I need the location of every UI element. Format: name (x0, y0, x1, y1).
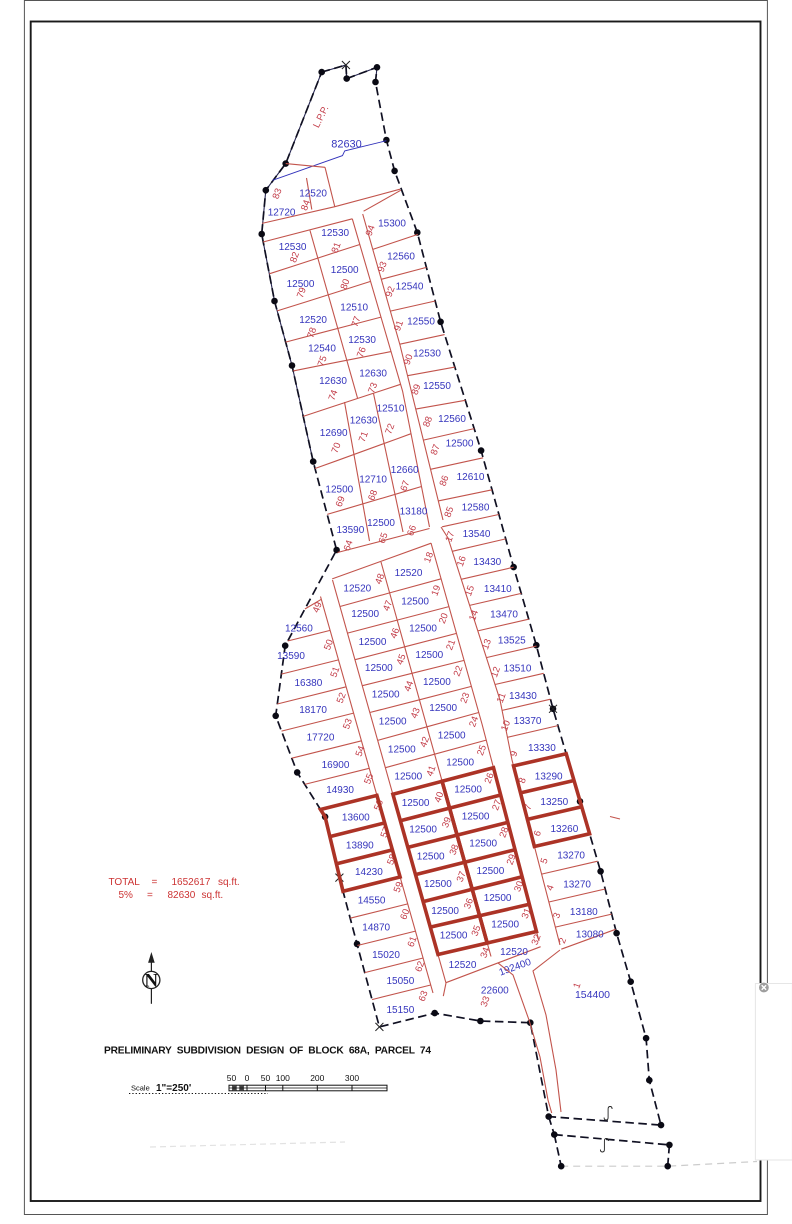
svg-text:12520: 12520 (449, 960, 477, 971)
svg-text:12520: 12520 (299, 189, 327, 200)
svg-text:13270: 13270 (557, 851, 585, 862)
svg-text:12530: 12530 (413, 349, 441, 360)
svg-text:13540: 13540 (463, 529, 491, 540)
svg-text:12520: 12520 (395, 568, 423, 579)
svg-text:13330: 13330 (528, 743, 556, 754)
svg-text:12500: 12500 (417, 852, 445, 863)
svg-text:12500: 12500 (491, 920, 519, 931)
svg-text:15050: 15050 (386, 976, 414, 987)
svg-text:12500: 12500 (331, 265, 359, 276)
svg-text:100: 100 (276, 1073, 290, 1083)
svg-text:12500: 12500 (379, 717, 407, 728)
svg-text:13590: 13590 (277, 651, 305, 662)
svg-text:12500: 12500 (388, 744, 416, 755)
svg-text:Scale: Scale (131, 1084, 150, 1093)
svg-text:12500: 12500 (415, 650, 443, 661)
svg-text:13180: 13180 (570, 907, 598, 918)
svg-text:82630: 82630 (331, 139, 362, 151)
svg-text:12500: 12500 (351, 609, 379, 620)
svg-text:TOTAL=1652617sq.ft.: TOTAL=1652617sq.ft. (109, 877, 240, 888)
svg-text:16380: 16380 (294, 678, 322, 689)
svg-text:12630: 12630 (319, 376, 347, 387)
svg-text:17720: 17720 (307, 733, 335, 744)
svg-text:12530: 12530 (348, 335, 376, 346)
svg-text:16900: 16900 (322, 760, 350, 771)
svg-text:N: N (144, 971, 158, 992)
svg-text:13180: 13180 (400, 507, 428, 518)
svg-text:12500: 12500 (454, 784, 482, 795)
svg-text:12500: 12500 (440, 931, 468, 942)
svg-text:13510: 13510 (504, 664, 532, 675)
svg-text:13080: 13080 (576, 930, 604, 941)
svg-text:12500: 12500 (359, 637, 387, 648)
svg-text:12510: 12510 (377, 403, 405, 414)
svg-text:12690: 12690 (320, 428, 348, 439)
svg-text:12720: 12720 (268, 208, 296, 219)
svg-text:50: 50 (227, 1073, 237, 1083)
svg-text:12500: 12500 (438, 730, 466, 741)
svg-text:300: 300 (345, 1073, 359, 1083)
svg-text:13430: 13430 (473, 557, 501, 568)
svg-text:12500: 12500 (446, 439, 474, 450)
svg-text:12660: 12660 (391, 465, 419, 476)
svg-text:12580: 12580 (462, 503, 490, 514)
svg-text:22600: 22600 (481, 986, 509, 997)
svg-text:12540: 12540 (396, 282, 424, 293)
svg-text:14550: 14550 (358, 895, 386, 906)
svg-text:12630: 12630 (359, 369, 387, 380)
svg-text:12500: 12500 (409, 825, 437, 836)
svg-text:12500: 12500 (476, 866, 504, 877)
svg-text:12560: 12560 (285, 623, 313, 634)
svg-text:13470: 13470 (490, 609, 518, 620)
svg-text:12520: 12520 (343, 583, 371, 594)
svg-text:12500: 12500 (424, 879, 452, 890)
svg-text:15020: 15020 (372, 950, 400, 961)
svg-text:12560: 12560 (438, 414, 466, 425)
svg-text:13270: 13270 (563, 880, 591, 891)
svg-text:12500: 12500 (431, 906, 459, 917)
svg-text:12610: 12610 (457, 472, 485, 483)
svg-text:12500: 12500 (409, 623, 437, 634)
svg-text:12550: 12550 (407, 317, 435, 328)
svg-text:13290: 13290 (535, 771, 563, 782)
svg-text:12500: 12500 (484, 893, 512, 904)
svg-text:13890: 13890 (346, 840, 374, 851)
svg-text:12500: 12500 (429, 703, 457, 714)
svg-text:12500: 12500 (402, 798, 430, 809)
svg-text:12710: 12710 (359, 474, 387, 485)
svg-text:13600: 13600 (342, 812, 370, 823)
svg-text:12500: 12500 (365, 663, 393, 674)
svg-text:12500: 12500 (367, 518, 395, 529)
svg-text:12540: 12540 (308, 343, 336, 354)
svg-text:14930: 14930 (326, 785, 354, 796)
svg-text:1"=250': 1"=250' (156, 1083, 191, 1094)
svg-text:12520: 12520 (299, 315, 327, 326)
svg-text:18170: 18170 (299, 705, 327, 716)
svg-text:50: 50 (261, 1073, 271, 1083)
svg-text:13370: 13370 (514, 716, 542, 727)
svg-text:12500: 12500 (325, 485, 353, 496)
svg-text:154400: 154400 (575, 989, 610, 1001)
svg-text:12510: 12510 (340, 302, 368, 313)
svg-text:12500: 12500 (372, 690, 400, 701)
svg-text:12500: 12500 (423, 677, 451, 688)
svg-text:12500: 12500 (394, 771, 422, 782)
svg-text:12500: 12500 (462, 811, 490, 822)
svg-text:12500: 12500 (401, 597, 429, 608)
svg-text:12500: 12500 (446, 758, 474, 769)
svg-text:14230: 14230 (355, 867, 383, 878)
svg-text:12560: 12560 (387, 252, 415, 263)
svg-text:PRELIMINARY SUBDIVISION DESI: PRELIMINARY SUBDIVISION DESIGN OF BLOCK … (104, 1046, 431, 1057)
svg-text:12520: 12520 (500, 947, 528, 958)
svg-text:12630: 12630 (350, 415, 378, 426)
svg-text:14870: 14870 (362, 922, 390, 933)
svg-text:200: 200 (310, 1073, 324, 1083)
svg-text:15300: 15300 (378, 219, 406, 230)
svg-text:12500: 12500 (469, 839, 497, 850)
svg-text:13525: 13525 (498, 636, 526, 647)
svg-text:13250: 13250 (540, 797, 568, 808)
svg-text:0: 0 (245, 1073, 250, 1083)
svg-text:12530: 12530 (321, 228, 349, 239)
svg-text:13430: 13430 (509, 691, 537, 702)
svg-text:12550: 12550 (423, 381, 451, 392)
svg-text:13590: 13590 (336, 525, 364, 536)
svg-text:15150: 15150 (386, 1005, 414, 1016)
svg-text:13410: 13410 (484, 584, 512, 595)
svg-text:13260: 13260 (550, 824, 578, 835)
